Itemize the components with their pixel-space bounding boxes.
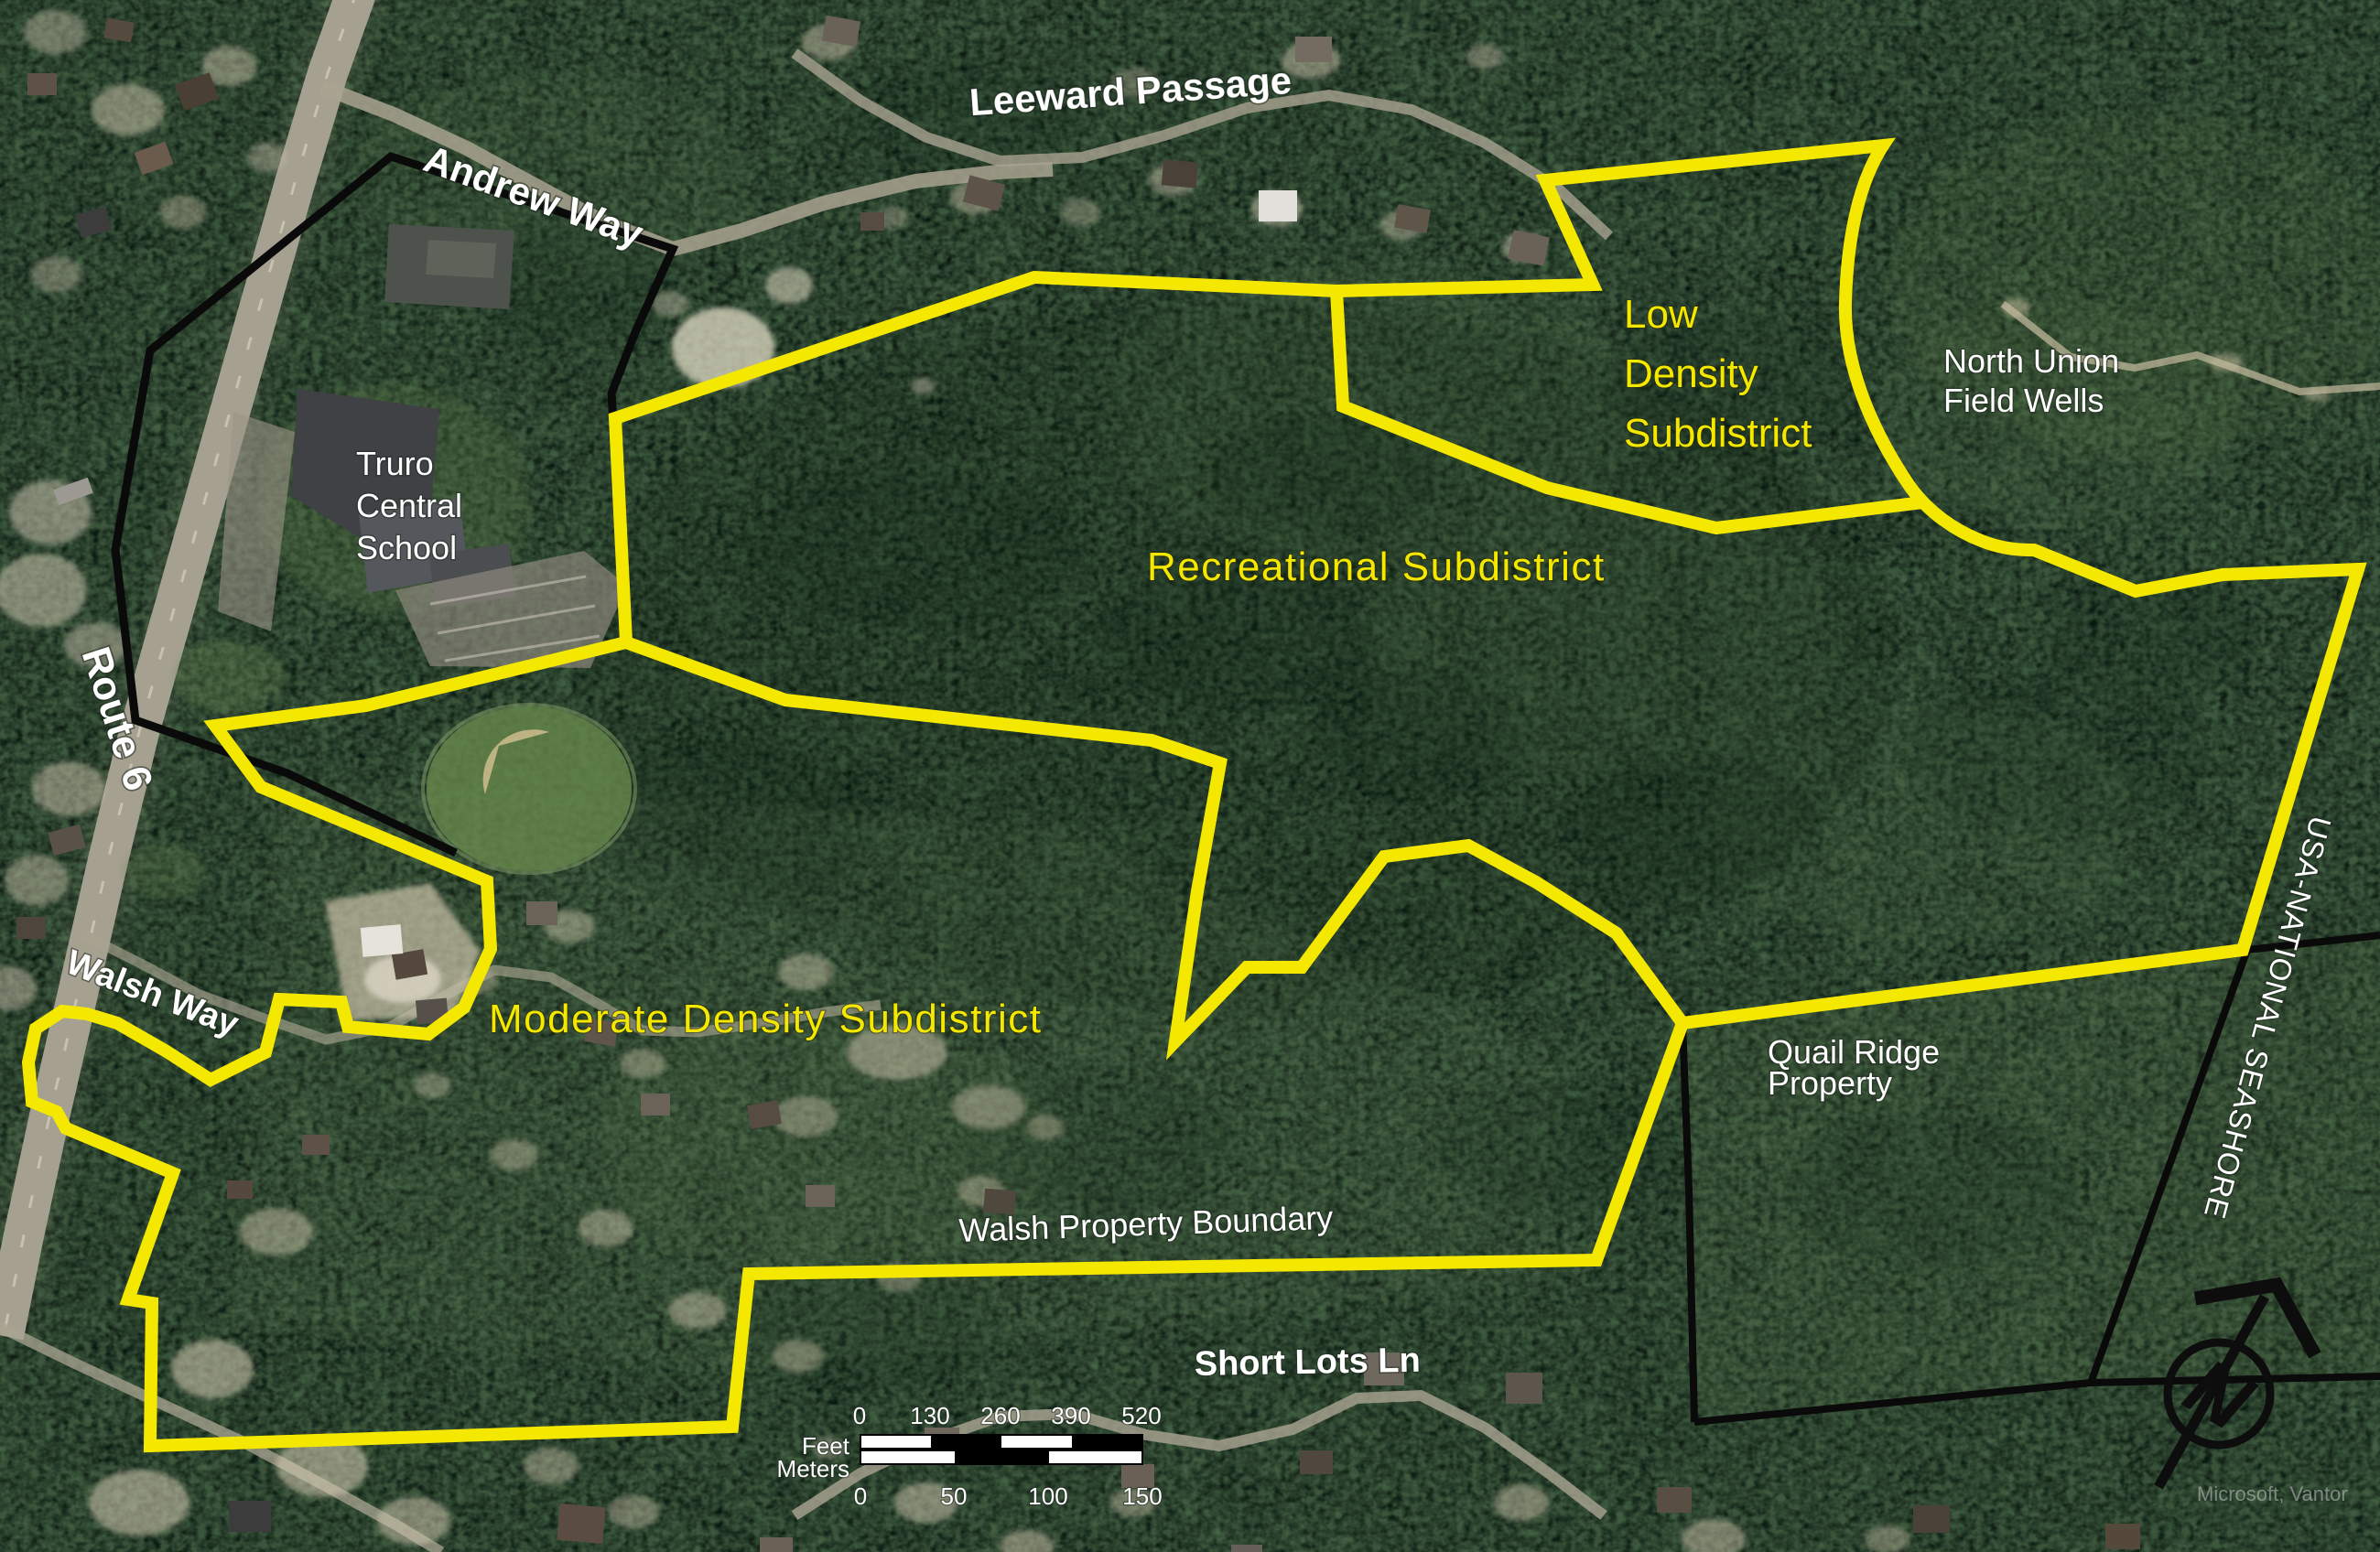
svg-text:Moderate Density Subdistrict: Moderate Density Subdistrict	[489, 997, 1042, 1041]
svg-text:Density: Density	[1624, 351, 1758, 396]
svg-text:100: 100	[1028, 1482, 1067, 1510]
svg-text:Property: Property	[1768, 1064, 1892, 1102]
svg-text:390: 390	[1051, 1402, 1090, 1429]
svg-text:Subdistrict: Subdistrict	[1624, 411, 1812, 456]
svg-text:North Union: North Union	[1943, 342, 2119, 380]
svg-text:Low: Low	[1624, 292, 1698, 337]
svg-text:Short Lots Ln: Short Lots Ln	[1194, 1342, 1421, 1384]
svg-text:520: 520	[1121, 1402, 1161, 1429]
svg-text:Meters: Meters	[777, 1455, 849, 1482]
svg-text:150: 150	[1122, 1482, 1162, 1510]
svg-text:School: School	[356, 529, 457, 566]
svg-text:0: 0	[853, 1402, 866, 1429]
svg-text:Central: Central	[356, 487, 462, 524]
svg-text:Field Wells: Field Wells	[1943, 382, 2104, 419]
svg-text:0: 0	[854, 1482, 867, 1510]
svg-text:Truro: Truro	[356, 445, 434, 482]
svg-text:260: 260	[980, 1402, 1020, 1429]
svg-text:Recreational Subdistrict: Recreational Subdistrict	[1147, 544, 1606, 589]
svg-text:Microsoft, Vantor: Microsoft, Vantor	[2197, 1482, 2348, 1505]
svg-text:130: 130	[910, 1402, 949, 1429]
svg-text:50: 50	[941, 1482, 968, 1510]
